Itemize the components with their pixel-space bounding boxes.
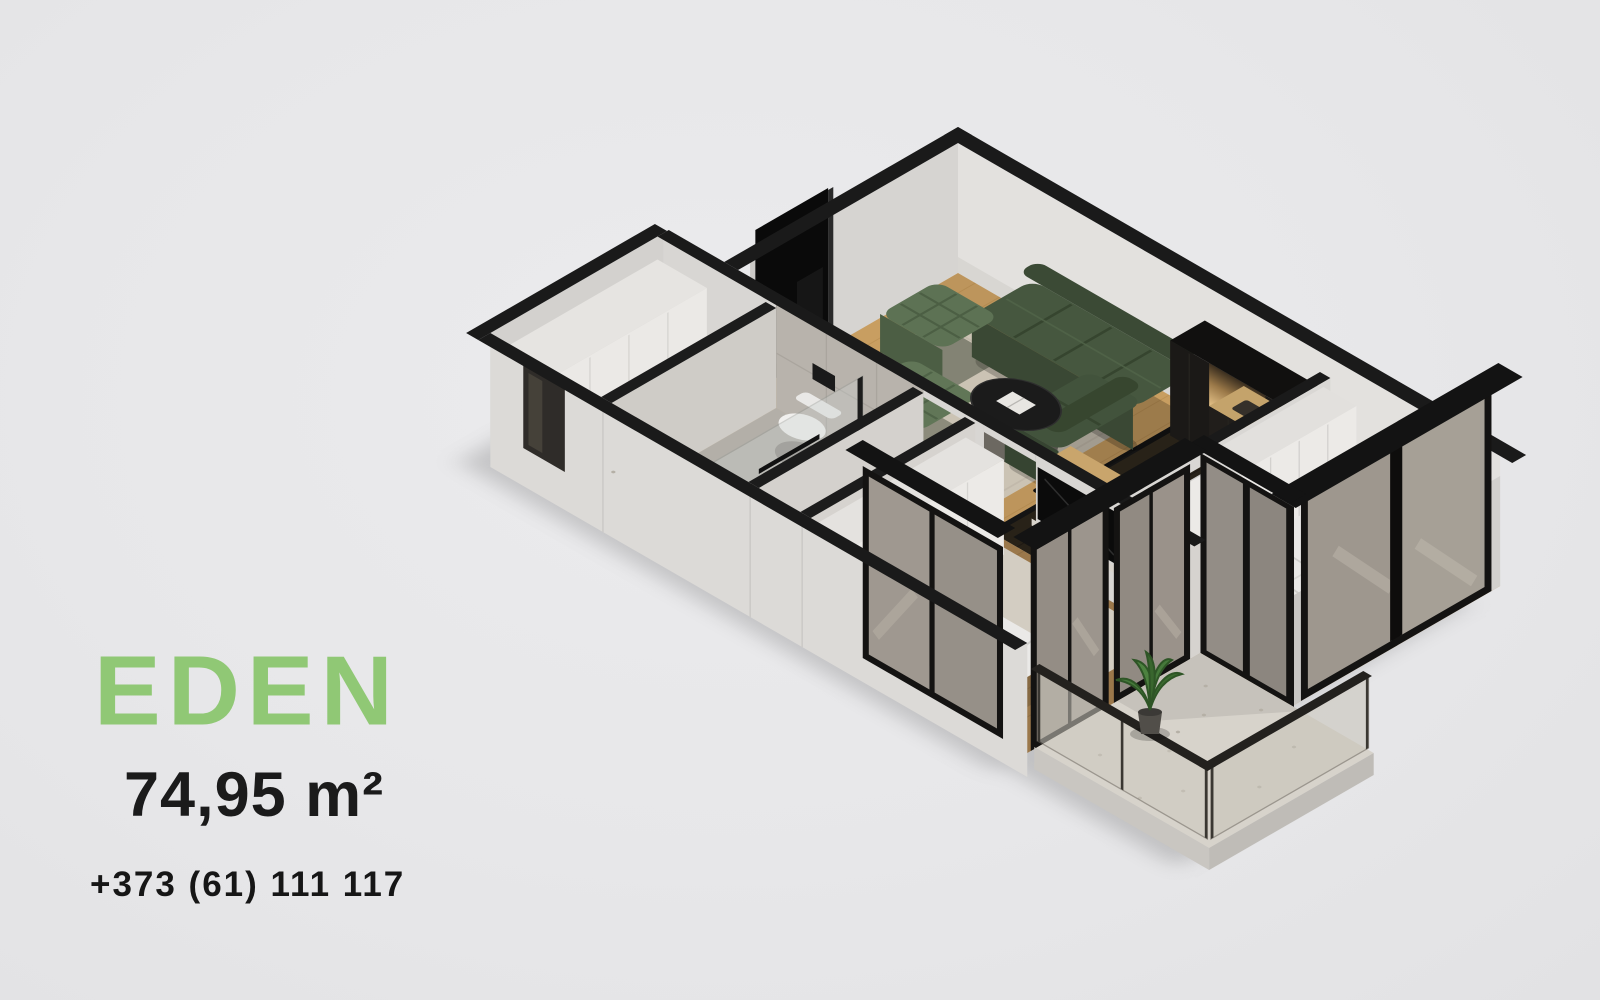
phone-number: +373 (61) 111 117	[90, 867, 405, 902]
area-label: 74,95 m²	[124, 764, 405, 827]
listing-info: EDEN 74,95 m² +373 (61) 111 117	[90, 646, 405, 902]
page: EDEN 74,95 m² +373 (61) 111 117	[0, 0, 1600, 1000]
brand-logo: EDEN	[94, 646, 405, 736]
